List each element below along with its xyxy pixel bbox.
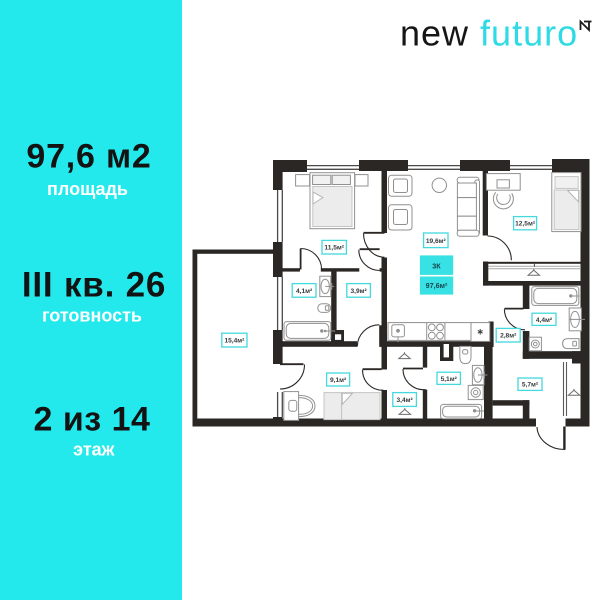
svg-text:3К: 3К: [432, 261, 441, 270]
svg-text:2,8м²: 2,8м²: [500, 333, 517, 340]
svg-text:площадь: площадь: [47, 179, 128, 199]
svg-text:III кв. 26: III кв. 26: [22, 266, 166, 305]
svg-text:11,5м²: 11,5м²: [324, 245, 344, 252]
svg-text:12,5м²: 12,5м²: [515, 221, 536, 228]
svg-text:new futuro: new futuro: [400, 13, 578, 54]
svg-text:4,4м²: 4,4м²: [536, 317, 553, 324]
svg-text:4,1м²: 4,1м²: [296, 288, 313, 295]
svg-text:5,7м²: 5,7м²: [522, 382, 539, 389]
svg-text:2 из 14: 2 из 14: [34, 401, 151, 439]
svg-text:5,1м²: 5,1м²: [441, 376, 458, 383]
svg-text:этаж: этаж: [73, 440, 115, 460]
svg-text:97,6 м2: 97,6 м2: [26, 138, 151, 176]
svg-text:97,6м²: 97,6м²: [426, 281, 448, 290]
svg-text:15,4м²: 15,4м²: [224, 338, 245, 345]
svg-text:3,9м²: 3,9м²: [350, 288, 367, 295]
svg-text:19,6м²: 19,6м²: [426, 238, 447, 245]
svg-text:9,1м²: 9,1м²: [330, 377, 347, 384]
svg-text:3,4м²: 3,4м²: [396, 397, 413, 404]
svg-text:готовность: готовность: [42, 306, 142, 326]
